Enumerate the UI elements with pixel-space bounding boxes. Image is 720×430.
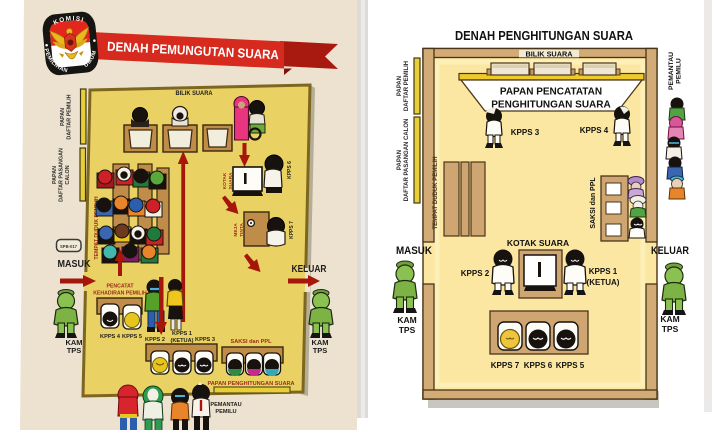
svg-text:TEMPAT DUDUK PEMILIH: TEMPAT DUDUK PEMILIH — [433, 156, 439, 229]
svg-text:KAMTPS: KAMTPS — [397, 315, 416, 335]
svg-text:KPPS 6: KPPS 6 — [524, 361, 553, 370]
svg-text:KPPS 4: KPPS 4 — [580, 126, 609, 135]
svg-text:DENAH PENGHITUNGAN SUARA: DENAH PENGHITUNGAN SUARA — [455, 28, 634, 43]
svg-text:MASUK: MASUK — [58, 258, 91, 270]
svg-text:KPPS 1(KETUA): KPPS 1(KETUA) — [171, 331, 194, 344]
svg-text:KPPS 5: KPPS 5 — [556, 361, 585, 370]
svg-text:KPPS 4: KPPS 4 — [100, 334, 121, 340]
svg-text:KPPS 3: KPPS 3 — [195, 337, 215, 343]
svg-text:PAPAN PENGHITUNGAN SUARA: PAPAN PENGHITUNGAN SUARA — [207, 381, 294, 387]
svg-text:KAMTPS: KAMTPS — [65, 338, 82, 355]
svg-text:KELUAR: KELUAR — [292, 263, 327, 275]
svg-text:KELUAR: KELUAR — [651, 245, 689, 257]
svg-text:BILIK SUARA: BILIK SUARA — [526, 50, 574, 59]
svg-text:KPPS 7: KPPS 7 — [289, 221, 295, 239]
svg-text:KPPS 6: KPPS 6 — [287, 161, 293, 179]
svg-text:KPPS 7: KPPS 7 — [491, 361, 520, 370]
svg-text:KPPS 2: KPPS 2 — [145, 337, 165, 343]
svg-text:BILIK SUARA: BILIK SUARA — [176, 91, 214, 97]
svg-text:MASUK: MASUK — [396, 245, 432, 257]
svg-text:SAKSI dan PPL: SAKSI dan PPL — [590, 177, 597, 229]
svg-text:KPPS 2: KPPS 2 — [461, 269, 490, 278]
svg-text:KPPS 3: KPPS 3 — [511, 128, 540, 137]
svg-text:KAMTPS: KAMTPS — [660, 314, 679, 334]
svg-text:PAPAN PENCATATAN: PAPAN PENCATATAN — [500, 87, 602, 98]
svg-text:SAKSI dan PPL: SAKSI dan PPL — [230, 339, 272, 345]
svg-text:KPPS 5: KPPS 5 — [122, 334, 142, 340]
svg-text:KAMTPS: KAMTPS — [311, 338, 328, 355]
svg-text:SPB-017: SPB-017 — [60, 244, 78, 249]
svg-text:KOTAK SUARA: KOTAK SUARA — [507, 238, 569, 248]
svg-text:PENGHITUNGAN SUARA: PENGHITUNGAN SUARA — [491, 100, 610, 111]
